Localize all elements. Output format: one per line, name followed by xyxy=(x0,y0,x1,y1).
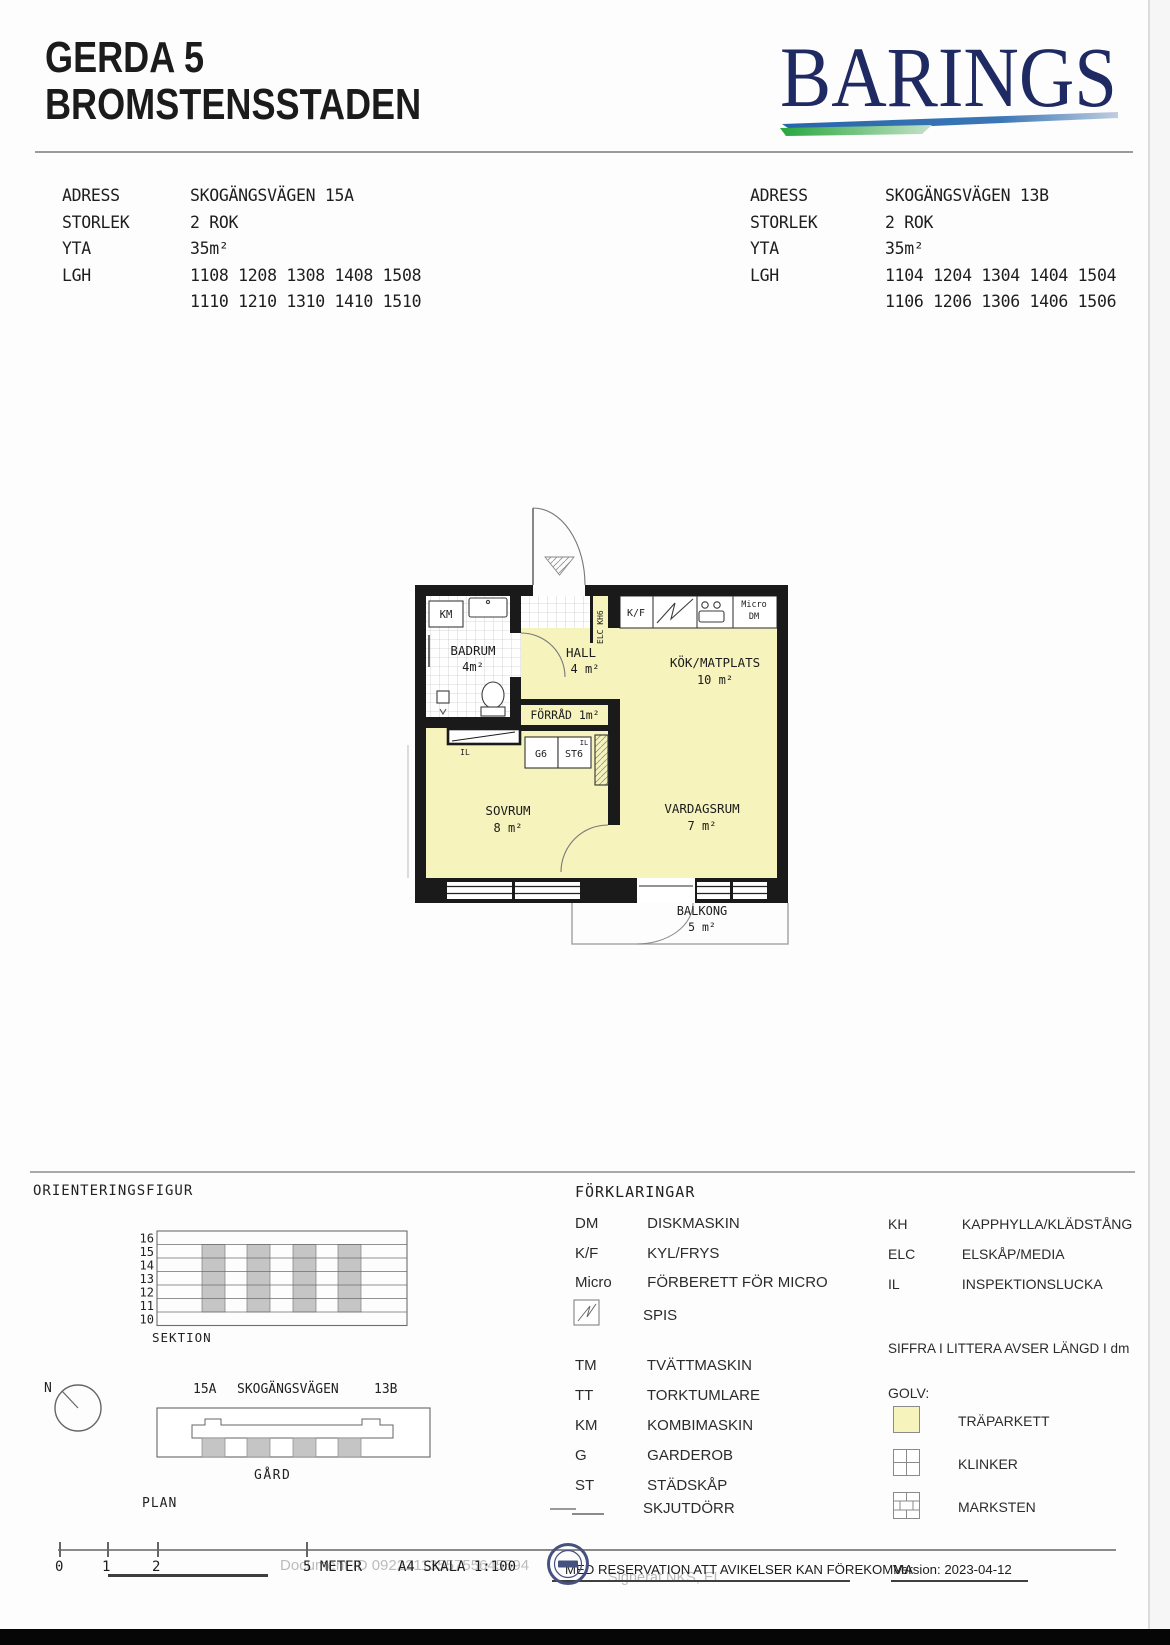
svg-text:11: 11 xyxy=(140,1299,154,1313)
legend-abbr: TM xyxy=(575,1357,643,1374)
scale-label-1: 1 xyxy=(102,1559,110,1575)
fixture-label-il: IL xyxy=(580,739,588,747)
scale-label-5m: 5 METER xyxy=(303,1559,362,1575)
legend-row-micro: Micro FÖRBERETT FÖR MICRO xyxy=(575,1274,828,1291)
legend-row-dm: DM DISKMASKIN xyxy=(575,1215,740,1232)
legend-desc: STÄDSKÅP xyxy=(647,1477,727,1494)
legend-abbr: ELC xyxy=(888,1246,958,1262)
brand-wordmark: BARINGS xyxy=(780,29,1117,114)
golv-klinker: KLINKER xyxy=(958,1456,1018,1472)
header-divider xyxy=(35,151,1133,153)
lgh-line2: 1110 1210 1310 1410 1510 xyxy=(190,289,421,316)
floor-numbers: 16 15 14 13 12 11 10 xyxy=(140,1232,154,1327)
storlek-label: STORLEK xyxy=(750,210,885,237)
room-label-badrum: BADRUM xyxy=(450,643,495,658)
reservation-note: MED RESERVATION ATT AVIKELSER KAN FÖREKO… xyxy=(565,1562,913,1577)
fixture-label-elc-kh6: ELC KH6 xyxy=(596,610,605,644)
page-title: GERDA 5 BROMSTENSSTADEN xyxy=(45,34,421,128)
adress-label: ADRESS xyxy=(62,183,190,210)
legend-desc: SPIS xyxy=(643,1307,677,1324)
unit-info-left: ADRESS SKOGÄNGSVÄGEN 15A STORLEK 2 ROK Y… xyxy=(62,183,421,316)
golv-label: GOLV: xyxy=(888,1385,929,1401)
legend-row-tt: TT TORKTUMLARE xyxy=(575,1387,760,1404)
svg-text:14: 14 xyxy=(140,1259,154,1273)
legend-desc: ELSKÅP/MEDIA xyxy=(962,1246,1065,1262)
svg-text:15: 15 xyxy=(140,1245,154,1259)
yta-label: YTA xyxy=(750,236,885,263)
lgh-label: LGH xyxy=(750,263,885,316)
highlighted-floors xyxy=(202,1245,361,1313)
legend-title: FÖRKLARINGAR xyxy=(575,1183,695,1201)
street-addr-left: 15A xyxy=(193,1382,216,1397)
room-label-hall: HALL xyxy=(566,645,596,660)
scale-ratio: A4 SKALA 1:100 xyxy=(398,1559,516,1575)
legend-desc: DISKMASKIN xyxy=(647,1215,740,1232)
scale-label-0: 0 xyxy=(55,1559,63,1575)
gard-label: GÅRD xyxy=(254,1468,291,1483)
room-label-sovrum: SOVRUM xyxy=(485,803,530,818)
page-edge-margin xyxy=(1150,0,1170,1629)
legend-desc: TORKTUMLARE xyxy=(647,1387,760,1404)
lgh-label: LGH xyxy=(62,263,190,316)
room-area-sovrum: 8 m² xyxy=(494,821,523,835)
svg-text:16: 16 xyxy=(140,1232,154,1246)
reservation-underline xyxy=(552,1580,850,1582)
room-area-hall: 4 m² xyxy=(571,662,600,676)
legend-row-km: KM KOMBIMASKIN xyxy=(575,1417,753,1434)
yta-value: 35m² xyxy=(190,236,421,263)
sliding-door-legend-icon xyxy=(548,1505,606,1519)
legend-row-st: ST STÄDSKÅP xyxy=(575,1477,727,1494)
floor-plan: BADRUM 4m² HALL 4 m² KÖK/MATPLATS 10 m² … xyxy=(385,495,795,950)
legend-desc: KOMBIMASKIN xyxy=(647,1417,753,1434)
legend-desc: GARDEROB xyxy=(647,1447,733,1464)
legend-row-il: IL INSPEKTIONSLUCKA xyxy=(888,1276,1103,1292)
project-area: BROMSTENSSTADEN xyxy=(45,81,421,128)
legend-desc: FÖRBERETT FÖR MICRO xyxy=(647,1274,828,1291)
version-label: Version: 2023-04-12 xyxy=(893,1562,1012,1577)
parquet-swatch-icon xyxy=(893,1406,920,1433)
legend-abbr: KM xyxy=(575,1417,643,1434)
yta-value: 35m² xyxy=(885,236,1116,263)
unit-info-right: ADRESS SKOGÄNGSVÄGEN 13B STORLEK 2 ROK Y… xyxy=(750,183,1116,316)
svg-text:10: 10 xyxy=(140,1313,154,1327)
svg-text:12: 12 xyxy=(140,1286,154,1300)
north-label: N xyxy=(44,1381,52,1396)
storlek-label: STORLEK xyxy=(62,210,190,237)
street-addr-right: 13B xyxy=(374,1382,397,1397)
scale-tick-0 xyxy=(59,1542,61,1557)
legend-desc: KAPPHYLLA/KLÄDSTÅNG xyxy=(962,1216,1132,1232)
legend-abbr: TT xyxy=(575,1387,643,1404)
fixture-label-kf: K/F xyxy=(627,608,645,619)
room-label-forrad: FÖRRÅD 1m² xyxy=(530,706,599,722)
floor-drain-icon xyxy=(437,691,449,703)
document-page: GERDA 5 BROMSTENSSTADEN BARINGS ADRESS S… xyxy=(0,0,1170,1645)
room-label-balkong: BALKONG xyxy=(677,904,728,918)
fixture-label-dm: DM xyxy=(749,612,759,622)
fixture-label-micro: Micro xyxy=(741,600,767,610)
room-area-badrum: 4m² xyxy=(462,660,484,674)
svg-text:13: 13 xyxy=(140,1272,154,1286)
street-name: SKOGÄNGSVÄGEN xyxy=(237,1382,339,1397)
stove-legend-icon xyxy=(573,1299,600,1326)
golv-traparkett: TRÄPARKETT xyxy=(958,1413,1050,1429)
legend-row-kh: KH KAPPHYLLA/KLÄDSTÅNG xyxy=(888,1216,1132,1232)
compass: N xyxy=(42,1368,116,1438)
lgh-line2: 1106 1206 1306 1406 1506 xyxy=(885,289,1116,316)
room-area-kok: 10 m² xyxy=(697,673,733,687)
storlek-value: 2 ROK xyxy=(885,210,1116,237)
entrance-marker-icon xyxy=(545,557,574,575)
brand-swoosh-icon xyxy=(780,112,1120,138)
signature-line xyxy=(108,1574,268,1577)
legend-abbr: G xyxy=(575,1447,643,1464)
legend-desc: KYL/FRYS xyxy=(647,1245,719,1262)
notary-seal-icon xyxy=(546,1542,590,1586)
legend-abbr: DM xyxy=(575,1215,643,1232)
scale-tick-1 xyxy=(107,1542,109,1557)
lgh-line1: 1104 1204 1304 1404 1504 xyxy=(885,263,1116,290)
legend-desc: SKJUTDÖRR xyxy=(643,1500,735,1517)
sektion-label: SEKTION xyxy=(152,1330,212,1345)
barings-logo: BARINGS xyxy=(780,20,1130,114)
klinker-swatch-icon xyxy=(893,1449,920,1476)
legend-row-spis: SPIS xyxy=(643,1307,677,1324)
adress-value: SKOGÄNGSVÄGEN 15A xyxy=(190,183,421,210)
golv-marksten: MARKSTEN xyxy=(958,1499,1036,1515)
lgh-line1: 1108 1208 1308 1408 1508 xyxy=(190,263,421,290)
legend-abbr: K/F xyxy=(575,1245,643,1262)
lgh-values: 1108 1208 1308 1408 1508 1110 1210 1310 … xyxy=(190,263,421,316)
legend-desc: TVÄTTMASKIN xyxy=(647,1357,752,1374)
legend-row-kf: K/F KYL/FRYS xyxy=(575,1245,719,1262)
legend-row-skjutdorr: SKJUTDÖRR xyxy=(643,1500,735,1517)
room-label-kok: KÖK/MATPLATS xyxy=(670,654,760,670)
version-underline xyxy=(891,1580,1028,1582)
sektion-grid xyxy=(157,1231,407,1326)
legend-abbr: Micro xyxy=(575,1274,643,1291)
storlek-value: 2 ROK xyxy=(190,210,421,237)
adress-value: SKOGÄNGSVÄGEN 13B xyxy=(885,183,1116,210)
adress-label: ADRESS xyxy=(750,183,885,210)
lgh-values: 1104 1204 1304 1404 1504 1106 1206 1306 … xyxy=(885,263,1116,316)
marksten-swatch-icon xyxy=(893,1492,920,1519)
toilet-icon xyxy=(482,682,504,708)
fixture-label-st6: ST6 xyxy=(565,749,583,760)
room-area-balkong: 5 m² xyxy=(688,920,716,934)
legend-desc: INSPEKTIONSLUCKA xyxy=(962,1276,1103,1292)
fixture-label-il2: IL xyxy=(460,748,470,757)
scale-label-2: 2 xyxy=(152,1559,160,1575)
plan-label: PLAN xyxy=(142,1496,177,1511)
legend-row-tm: TM TVÄTTMASKIN xyxy=(575,1357,752,1374)
scale-tick-2 xyxy=(157,1542,159,1557)
yta-label: YTA xyxy=(62,236,190,263)
legend-abbr: IL xyxy=(888,1276,958,1292)
section-divider xyxy=(30,1171,1135,1173)
compass-needle-icon xyxy=(62,1391,78,1408)
project-name: GERDA 5 xyxy=(45,34,421,81)
room-area-vardagsrum: 7 m² xyxy=(688,819,717,833)
fixture-label-g6: G6 xyxy=(535,749,547,760)
scale-tick-5 xyxy=(306,1542,308,1557)
orientering-title: ORIENTERINGSFIGUR xyxy=(33,1183,193,1199)
sektion-figure: 16 15 14 13 12 11 10 xyxy=(126,1227,416,1339)
littera-note: SIFFRA I LITTERA AVSER LÄNGD I dm xyxy=(888,1341,1129,1356)
legend-abbr: ST xyxy=(575,1477,643,1494)
tall-cabinet xyxy=(595,735,608,785)
legend-row-g: G GARDEROB xyxy=(575,1447,733,1464)
screenshot-bottom-bar xyxy=(0,1629,1170,1645)
site-plan-figure xyxy=(155,1404,440,1464)
room-label-vardagsrum: VARDAGSRUM xyxy=(664,801,739,816)
legend-row-elc: ELC ELSKÅP/MEDIA xyxy=(888,1246,1065,1262)
fixture-label-km: KM xyxy=(440,609,453,621)
legend-abbr: KH xyxy=(888,1216,958,1232)
